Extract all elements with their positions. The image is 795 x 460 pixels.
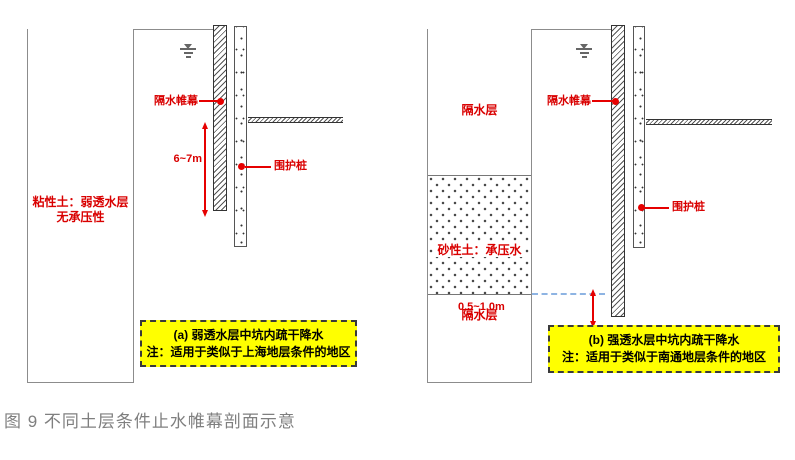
figure-canvas: 隔水帷幕 6~7m 围护桩 粘性土：弱透水层 无承压性 (a) 弱透水层中坑内疏… <box>0 0 795 460</box>
sand-layer-b <box>428 175 531 295</box>
water-table-icon <box>576 44 592 58</box>
panel-note-b: 注：适用于类似于南通地层条件的地区 <box>562 350 766 365</box>
pile-label-b: 围护桩 <box>672 201 705 214</box>
soil-label-a-line1: 粘性土：弱透水层 <box>27 195 134 210</box>
embed-dimension-b: 0.5~1.0m <box>458 301 505 314</box>
figure-caption: 图 9 不同土层条件止水帷幕剖面示意 <box>4 407 296 432</box>
curtain-leader-dot-a <box>217 98 224 105</box>
sand-label-b-text: 砂性土：承压水 <box>435 243 523 257</box>
retaining-pile-a <box>234 26 247 247</box>
curtain-label-b: 隔水帷幕 <box>539 95 591 108</box>
embed-arrow-b <box>592 295 594 322</box>
caption-panel-a: (a) 弱透水层中坑内疏干降水 注：适用于类似于上海地层条件的地区 <box>140 320 357 367</box>
soil-label-a-line2: 无承压性 <box>27 210 134 225</box>
waterproof-curtain-b <box>611 25 625 317</box>
soil-label-a: 粘性土：弱透水层 无承压性 <box>27 195 134 225</box>
retaining-pile-b <box>633 26 645 248</box>
panel-title-a: (a) 弱透水层中坑内疏干降水 <box>173 328 323 343</box>
caption-panel-b: (b) 强透水层中坑内疏干降水 注：适用于类似于南通地层条件的地区 <box>548 325 780 373</box>
floor-slab-a <box>248 117 343 123</box>
waterproof-curtain-a <box>213 25 227 211</box>
curtain-leader-dot-b <box>612 98 619 105</box>
depth-arrow-a <box>204 128 206 211</box>
pile-leader-dot-b <box>638 204 645 211</box>
pile-label-a: 围护桩 <box>274 160 307 173</box>
water-table-icon <box>180 44 196 58</box>
panel-title-b: (b) 强透水层中坑内疏干降水 <box>589 333 740 348</box>
panel-note-a: 注：适用于类似于上海地层条件的地区 <box>146 345 350 360</box>
depth-dimension-a: 6~7m <box>168 153 202 166</box>
pile-leader-dot-a <box>238 163 245 170</box>
sand-label-b: 砂性土：承压水 <box>427 243 532 258</box>
floor-slab-b <box>646 119 772 125</box>
pile-leader-a <box>245 166 271 168</box>
pile-leader-b <box>645 207 669 209</box>
upper-aquitard-label-b: 隔水层 <box>427 103 532 118</box>
curtain-label-a: 隔水帷幕 <box>146 95 198 108</box>
